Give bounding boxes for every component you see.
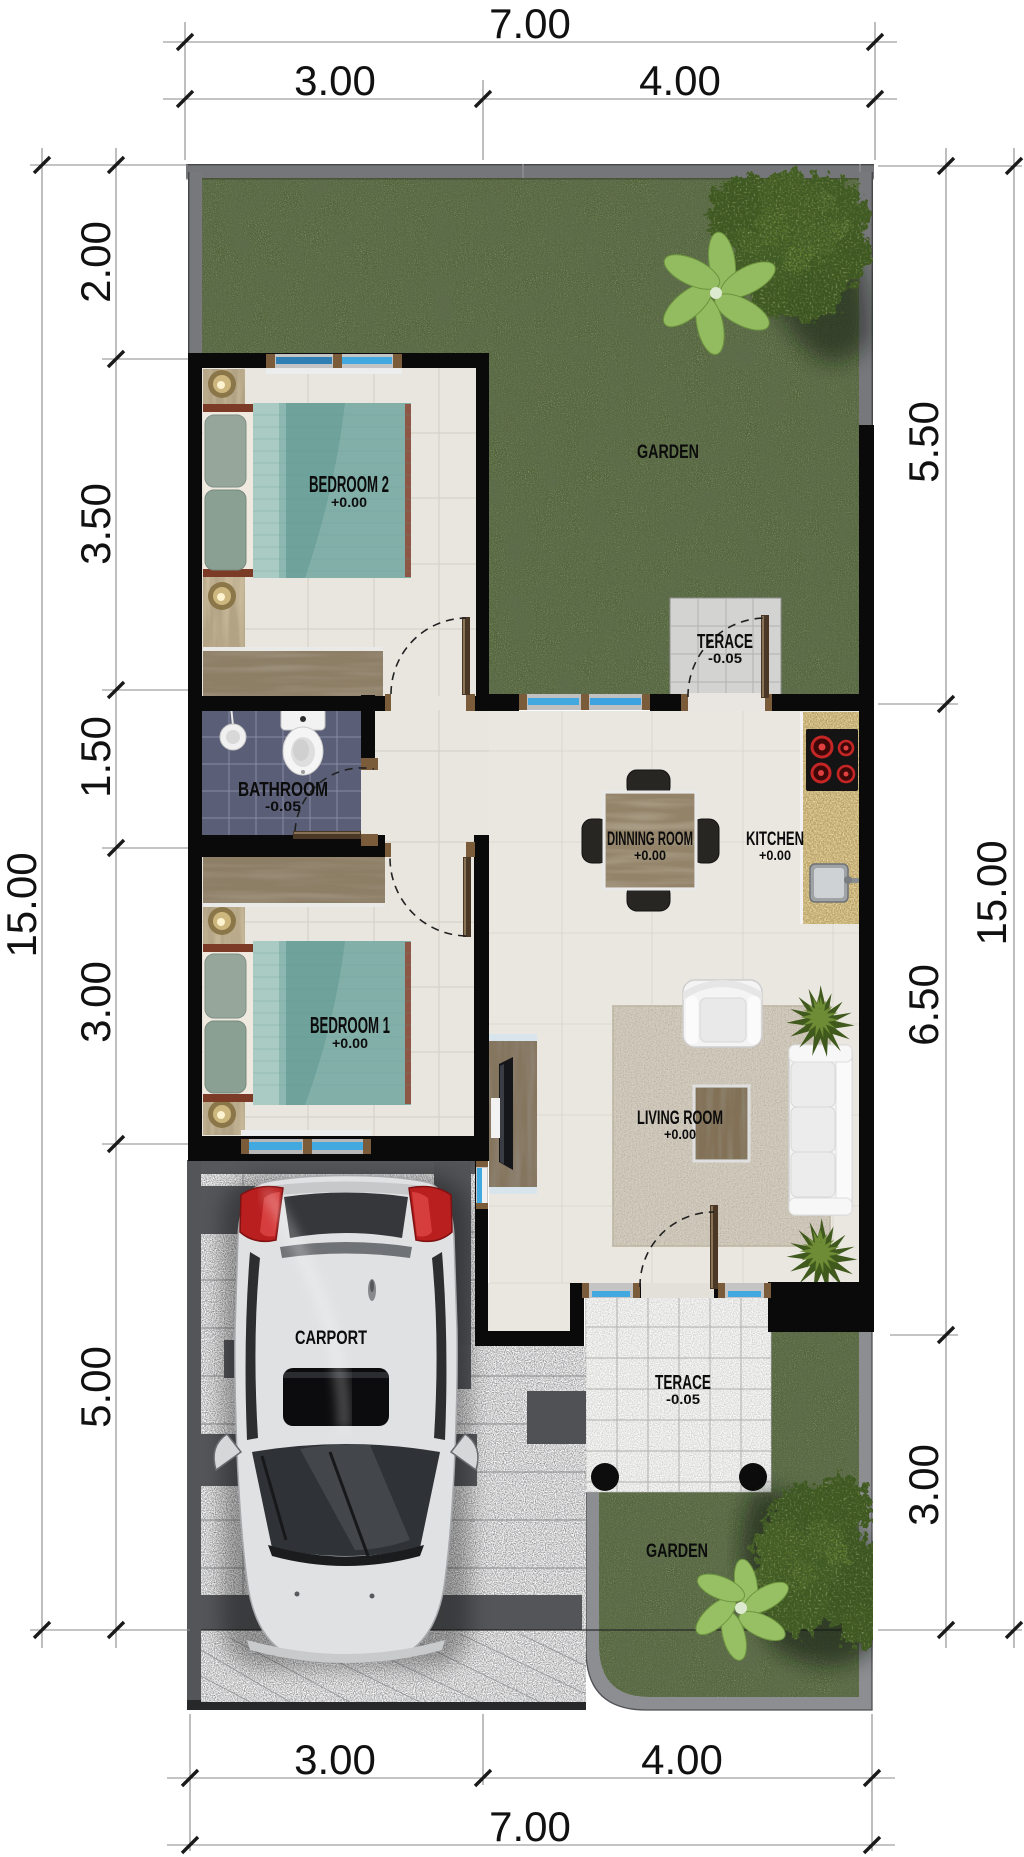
svg-text:2.00: 2.00 [72,221,119,303]
svg-text:1.50: 1.50 [72,716,119,798]
svg-text:7.00: 7.00 [489,0,571,47]
svg-text:3.00: 3.00 [294,1736,376,1783]
svg-text:4.00: 4.00 [639,57,721,104]
svg-text:+0.00: +0.00 [634,847,666,863]
svg-text:-0.05: -0.05 [265,798,301,814]
svg-text:15.00: 15.00 [0,852,45,957]
svg-text:15.00: 15.00 [968,840,1015,945]
svg-text:GARDEN: GARDEN [646,1541,708,1562]
svg-text:CARPORT: CARPORT [295,1328,367,1349]
svg-text:3.00: 3.00 [294,57,376,104]
svg-text:3.00: 3.00 [72,961,119,1043]
svg-text:7.00: 7.00 [489,1803,571,1850]
svg-text:5.50: 5.50 [900,401,947,483]
svg-text:-0.05: -0.05 [708,650,742,666]
svg-text:+0.00: +0.00 [331,494,367,510]
svg-text:+0.00: +0.00 [759,847,791,863]
svg-text:3.00: 3.00 [900,1444,947,1526]
svg-text:3.50: 3.50 [72,483,119,565]
svg-text:GARDEN: GARDEN [637,442,699,463]
svg-text:+0.00: +0.00 [332,1035,368,1051]
svg-text:6.50: 6.50 [900,964,947,1046]
svg-text:4.00: 4.00 [641,1736,723,1783]
svg-text:5.00: 5.00 [72,1346,119,1428]
svg-text:+0.00: +0.00 [664,1126,696,1142]
svg-text:-0.05: -0.05 [666,1391,700,1407]
